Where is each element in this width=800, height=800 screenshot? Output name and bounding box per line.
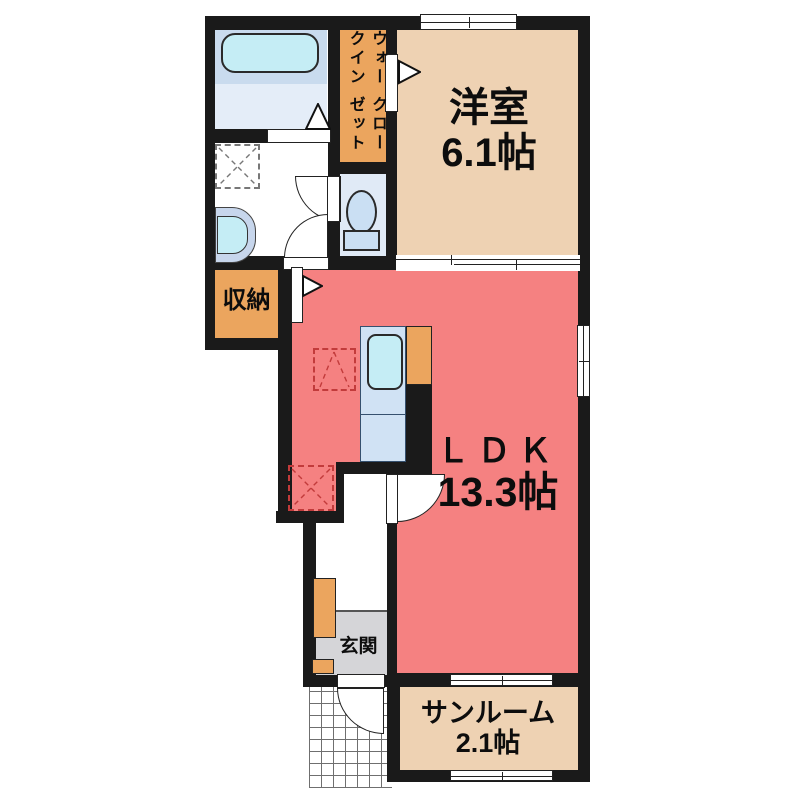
wall-top: [205, 16, 590, 30]
walk-in-closet-label: ウォークイン クローゼット: [338, 30, 388, 162]
storage-label: 収納: [215, 283, 278, 319]
ldk-name: ＬＤＫ: [437, 433, 560, 470]
shoe-cabinet-small: [312, 659, 334, 674]
toilet-tank: [343, 230, 380, 251]
refrigerator-space: [288, 465, 334, 511]
wall-hall-left-stub: [336, 462, 344, 519]
kitchen-counter-divider: [360, 414, 406, 415]
wall-left-outer: [205, 16, 215, 350]
window-western-top: [420, 14, 517, 30]
door-leaf-washroom: [283, 257, 329, 270]
kitchen-sink: [367, 334, 403, 390]
door-leaf-hall-ldk: [386, 474, 398, 524]
window-ldk-right: [577, 325, 590, 397]
washbasin-bowl: [217, 216, 248, 254]
bathtub: [221, 33, 319, 73]
window-sunroom-bottom: [450, 770, 553, 781]
door-arrow-bathroom: [305, 103, 331, 130]
door-leaf-toilet: [327, 176, 340, 222]
sunroom-label: サンルーム 2.1帖: [399, 692, 577, 764]
storage-name: 収納: [223, 288, 271, 315]
wic-line1: ウォークイン: [338, 30, 388, 96]
entrance-name: 玄関: [339, 636, 377, 657]
door-leaf-bathroom: [267, 129, 331, 143]
window-sunroom-top: [450, 674, 553, 686]
wall-bath-washroom-divider: [213, 129, 272, 143]
ldk-label: ＬＤＫ 13.3帖: [408, 420, 588, 528]
western-room-name: 洋室: [449, 86, 529, 131]
washing-machine-space: [215, 144, 260, 189]
entrance-label: 玄関: [330, 634, 387, 660]
door-leaf-front: [337, 674, 385, 688]
shoe-cabinet-tall: [313, 578, 336, 638]
door-arrow-storage: [302, 274, 323, 298]
wic-line2: クローゼット: [338, 96, 388, 162]
western-room-label: 洋室 6.1帖: [397, 75, 581, 187]
sliding-door-western-ldk: [396, 255, 580, 271]
floorplan: 洋室 6.1帖 ＬＤＫ 13.3帖 サンルーム 2.1帖 収納 玄関 ウォークイ…: [0, 0, 800, 800]
western-room-area: 6.1帖: [441, 131, 537, 176]
kitchen-stove-counter: [406, 326, 432, 385]
sunroom-name: サンルーム: [421, 698, 555, 728]
appliance-space-upper: [313, 348, 356, 391]
toilet-bowl: [346, 190, 377, 234]
sunroom-area: 2.1帖: [456, 728, 521, 758]
ldk-area: 13.3帖: [438, 470, 559, 516]
